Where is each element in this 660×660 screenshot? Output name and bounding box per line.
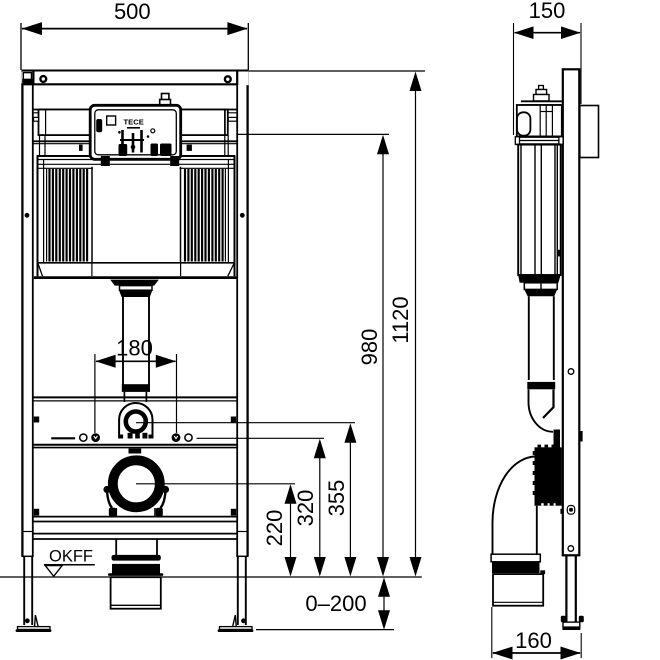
svg-text:TECE: TECE bbox=[124, 118, 144, 127]
svg-text:1120: 1120 bbox=[388, 296, 413, 343]
svg-text:160: 160 bbox=[515, 628, 552, 653]
svg-text:0–200: 0–200 bbox=[305, 591, 366, 616]
svg-text:980: 980 bbox=[357, 329, 382, 366]
svg-text:220: 220 bbox=[262, 510, 287, 547]
svg-text:320: 320 bbox=[293, 490, 318, 527]
svg-text:150: 150 bbox=[529, 0, 566, 23]
svg-text:OKFF: OKFF bbox=[49, 548, 93, 566]
svg-text:500: 500 bbox=[114, 0, 151, 24]
svg-text:355: 355 bbox=[324, 480, 349, 517]
svg-text:180: 180 bbox=[116, 336, 153, 361]
